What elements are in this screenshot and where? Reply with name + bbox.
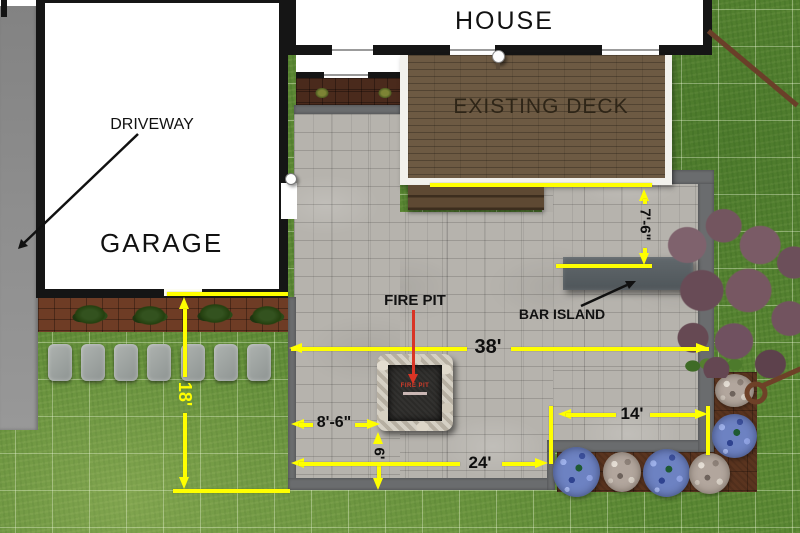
dim-arrow-right: [535, 458, 548, 468]
dim-arrow-down: [179, 477, 189, 489]
dim-ext-76: [556, 264, 652, 268]
dim-ext-14: [706, 406, 710, 455]
fire-pit-arrow-head: [408, 374, 418, 384]
dim-ext-24: [549, 406, 553, 464]
small-plant: [376, 86, 394, 100]
fire-pit-arrow-line: [412, 310, 415, 374]
dim-text-right-width: 14': [614, 405, 650, 422]
dim-arrow-down: [373, 478, 383, 490]
patio-border: [672, 170, 714, 184]
dim-text-deck-to-island: 7'-6": [638, 202, 653, 248]
label-existing-deck: EXISTING DECK: [446, 95, 636, 118]
driveway-arrow: [8, 128, 148, 263]
dim-arrow-down: [639, 253, 649, 265]
dim-ext-18: [167, 292, 288, 296]
label-fire-pit: FIRE PIT: [381, 293, 449, 310]
dim-arrow-left: [289, 343, 302, 353]
grass-plant: [128, 302, 172, 329]
garage-side-door: [281, 183, 297, 219]
ornamental-tree: [658, 203, 800, 378]
bar-island-arrow: [575, 276, 639, 312]
deck-light-stem: [496, 63, 500, 69]
dim-line-18: [183, 413, 187, 477]
dim-ext-18: [173, 489, 290, 493]
stepping-stone: [81, 344, 105, 381]
dim-arrow-right: [367, 419, 380, 429]
dim-line-14: [650, 413, 696, 417]
blue-flower-shrub: [712, 414, 757, 458]
dim-line-24: [502, 462, 536, 466]
dim-arrow-up: [179, 297, 189, 309]
door-knob: [285, 173, 297, 185]
fire-pit-unit-subtext: [403, 392, 427, 395]
blue-flower-shrub: [643, 449, 690, 497]
deck-light-fixture: [492, 50, 505, 63]
dim-text-left-depth: 18': [176, 374, 194, 414]
dim-line-38: [511, 347, 709, 351]
garden-hose: [733, 356, 800, 410]
blue-flower-shrub: [553, 447, 600, 497]
existing-deck: [400, 55, 672, 185]
dim-line-14: [566, 413, 616, 417]
silver-mound-plant: [603, 452, 641, 492]
wall-fragment: [1, 0, 7, 17]
dim-text-patio-width: 38': [465, 337, 511, 357]
label-house: HOUSE: [455, 8, 547, 36]
house-window: [602, 45, 659, 55]
stepping-stone: [247, 344, 271, 381]
silver-mound-plant: [689, 453, 730, 494]
stepping-stone: [48, 344, 72, 381]
patio-border: [288, 478, 555, 490]
dim-line-24: [299, 462, 460, 466]
landscape-plan-canvas: FIRE PIT 38' 18' 8'-6" 6' 24' 1: [0, 0, 800, 533]
stepping-stone: [147, 344, 171, 381]
dim-ext-76: [430, 183, 652, 187]
grass-plant: [193, 300, 237, 327]
deck-steps: [408, 185, 544, 210]
dim-arrow-right: [696, 343, 709, 353]
house-window: [332, 45, 373, 55]
grass-plant: [68, 301, 112, 328]
stepping-stone: [114, 344, 138, 381]
small-plant: [313, 86, 331, 100]
dim-line-18: [183, 309, 187, 377]
stepping-stone: [214, 344, 238, 381]
dim-text-fire-pit-offset: 8'-6": [311, 415, 357, 431]
dim-line-38: [291, 347, 467, 351]
patio-border: [294, 105, 400, 114]
grass-plant: [246, 302, 288, 329]
house-window: [450, 45, 495, 55]
dim-text-lower-width: 24': [458, 454, 502, 471]
porch-strip: [296, 55, 400, 72]
